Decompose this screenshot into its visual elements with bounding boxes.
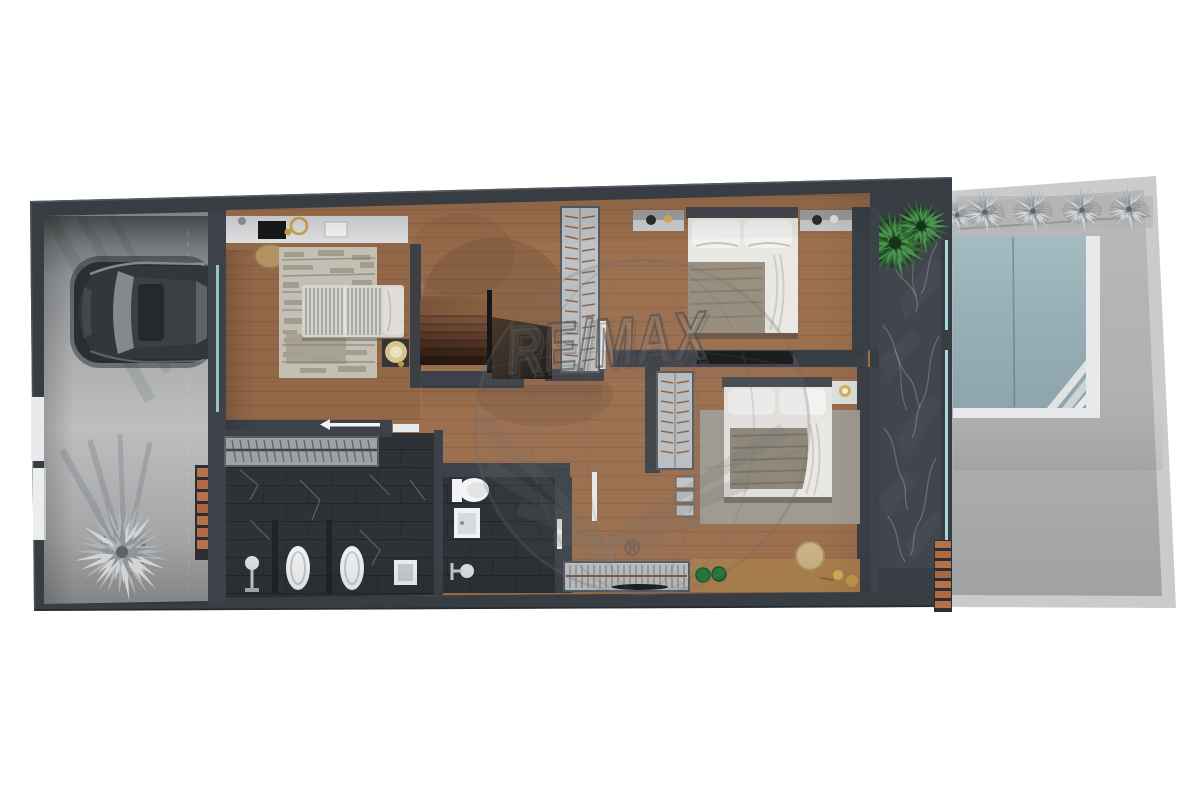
svg-text:RE/MAX: RE/MAX: [505, 296, 709, 388]
svg-text:®: ®: [624, 536, 642, 560]
